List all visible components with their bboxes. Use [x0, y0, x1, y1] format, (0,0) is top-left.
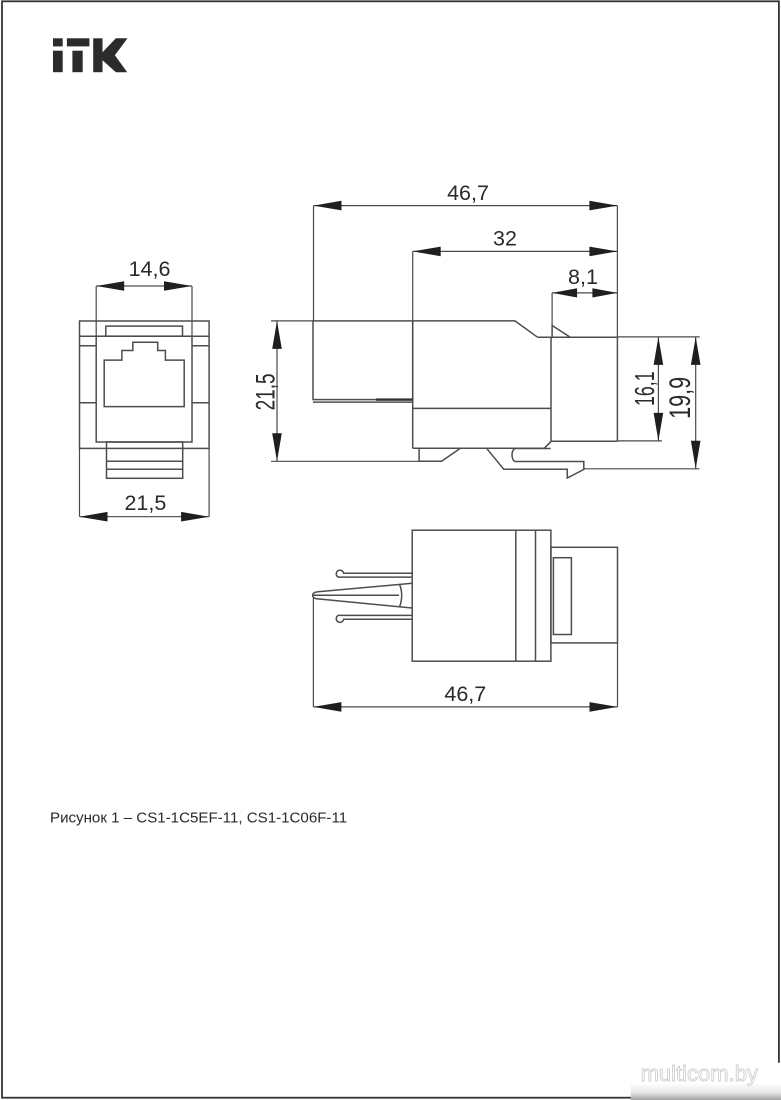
- svg-text:21,5: 21,5: [251, 373, 281, 410]
- svg-text:14,6: 14,6: [129, 257, 171, 281]
- svg-text:21,5: 21,5: [124, 491, 166, 515]
- svg-text:46,7: 46,7: [444, 682, 486, 706]
- svg-text:46,7: 46,7: [447, 181, 489, 205]
- svg-text:19,9: 19,9: [664, 377, 697, 419]
- svg-text:16,1: 16,1: [629, 371, 660, 406]
- svg-text:8,1: 8,1: [568, 265, 598, 289]
- svg-text:Рисунок 1 – CS1-1C5EF-11, CS1-: Рисунок 1 – CS1-1C5EF-11, CS1-1C06F-11: [50, 809, 347, 826]
- svg-text:32: 32: [493, 226, 517, 250]
- svg-text:multicom.by: multicom.by: [641, 1061, 758, 1086]
